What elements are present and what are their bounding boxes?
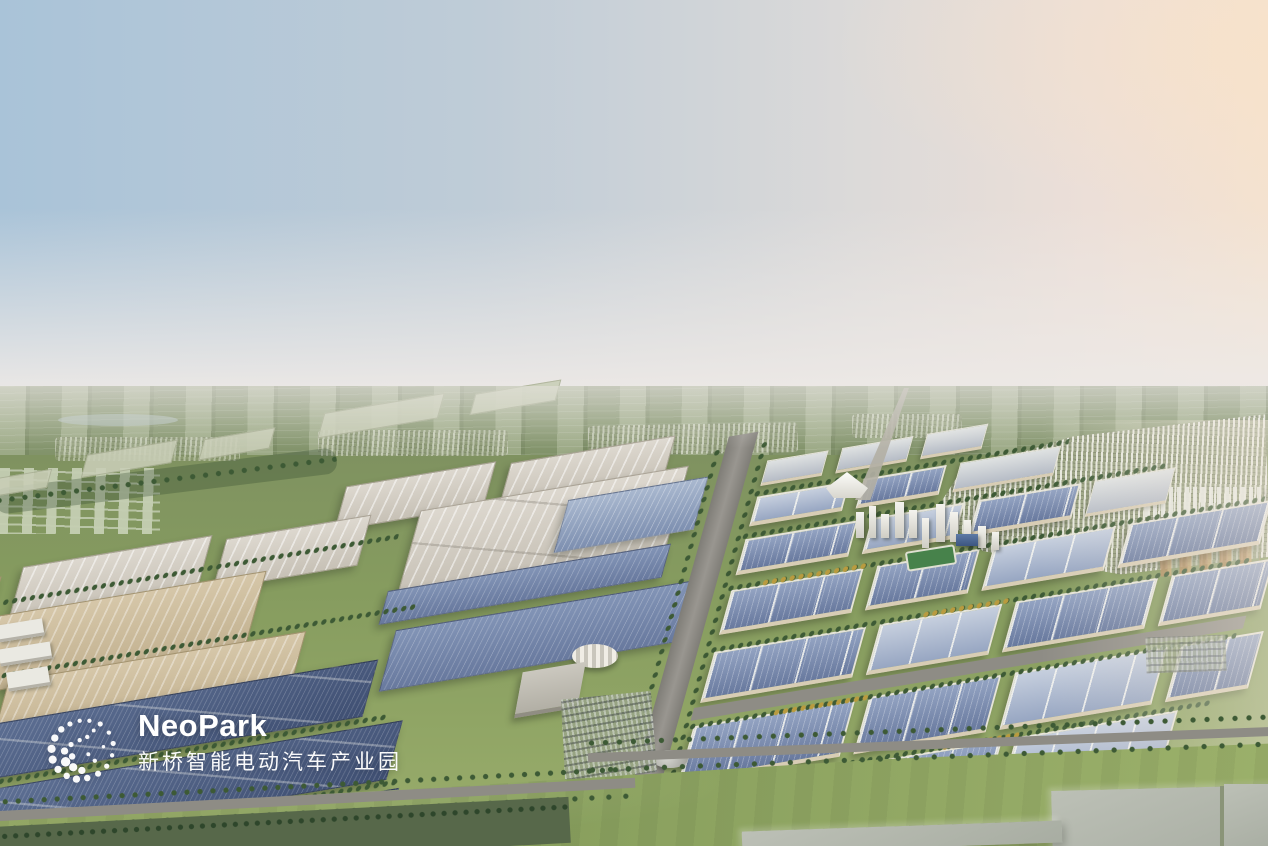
parking-lot — [1145, 635, 1226, 674]
distant-shed — [198, 427, 275, 460]
brand-subtitle-cn: 新桥智能电动汽车产业园 — [138, 750, 402, 775]
office-slab — [0, 642, 52, 667]
office-slabs-group — [0, 615, 76, 701]
glass-office-building — [956, 534, 978, 546]
tower — [936, 504, 945, 542]
distant-shed — [81, 440, 178, 479]
tower — [895, 502, 904, 538]
brand-name: NeoPark — [138, 710, 402, 741]
tower — [856, 512, 864, 538]
watermark-text-block: NeoPark 新桥智能电动汽车产业园 — [138, 710, 402, 775]
dot-sphere-logo-icon — [44, 710, 124, 792]
neopark-watermark: NeoPark 新桥智能电动汽车产业园 — [44, 710, 402, 792]
tower — [881, 514, 889, 538]
tower — [992, 532, 999, 550]
tower — [909, 510, 917, 538]
aerial-render-scene: NeoPark 新桥智能电动汽车产业园 — [0, 0, 1268, 846]
tower — [869, 506, 876, 538]
tower — [922, 518, 929, 548]
distant-shed — [317, 393, 444, 439]
distant-shed — [0, 469, 52, 500]
distant-shed — [470, 379, 562, 415]
concrete-pad — [1224, 784, 1268, 846]
office-slab — [6, 666, 50, 691]
tower — [978, 526, 986, 548]
